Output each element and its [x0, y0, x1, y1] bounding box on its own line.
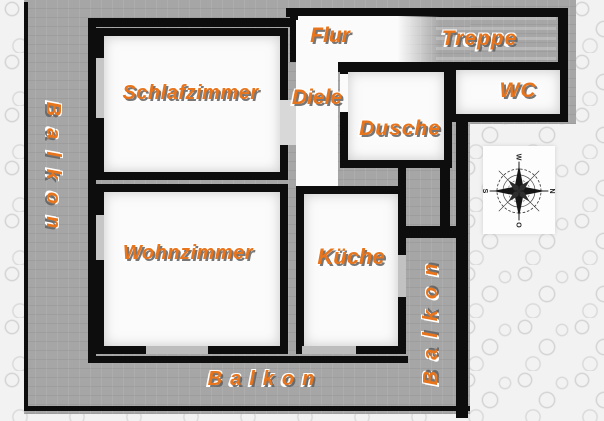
wall-shaft-divider: [440, 164, 450, 230]
balkon-left-label: Balkon: [42, 96, 64, 246]
door-kueche-balcony-right: [398, 255, 406, 297]
dusche-label: Dusche: [350, 117, 450, 140]
compass-icon: N O S W: [483, 146, 555, 234]
floorplan-canvas: Schlafzimmer Flur Treppe Diele Dusche WC…: [0, 0, 604, 421]
compass-rose: N O S W: [483, 146, 555, 234]
compass-n-label: N: [548, 188, 555, 193]
balkon-right-label: Balkon: [420, 244, 442, 394]
wall-right-lower: [456, 120, 468, 418]
compass-s-label: S: [483, 189, 488, 194]
treppe-label: Treppe: [432, 27, 527, 50]
diele-label: Diele: [283, 86, 351, 109]
window-wohnzimmer-balcony: [96, 215, 104, 260]
balkon-bottom-label: Balkon: [195, 368, 335, 390]
wc-label: WC: [492, 79, 544, 102]
door-kueche-balcony-bottom: [302, 346, 356, 354]
room-kueche: [296, 186, 406, 354]
room-schlafzimmer: [96, 28, 288, 180]
wohnzimmer-label: Wohnzimmer: [108, 242, 268, 264]
wall-bottom: [88, 356, 408, 363]
door-wohnzimmer-balcony: [146, 346, 208, 354]
kueche-label: Küche: [305, 245, 397, 269]
wall-left: [88, 18, 96, 363]
room-wohnzimmer: [96, 184, 288, 354]
outer-boundary-bottom: [24, 406, 470, 411]
wall-top-left: [88, 18, 296, 27]
outer-boundary-left: [24, 2, 28, 408]
flur-label: Flur: [298, 24, 362, 47]
schlafzimmer-label: Schlafzimmer: [103, 82, 278, 104]
compass-w-label: W: [515, 154, 522, 161]
compass-e-label: O: [515, 222, 522, 228]
wall-shaft-bottom: [404, 226, 468, 238]
